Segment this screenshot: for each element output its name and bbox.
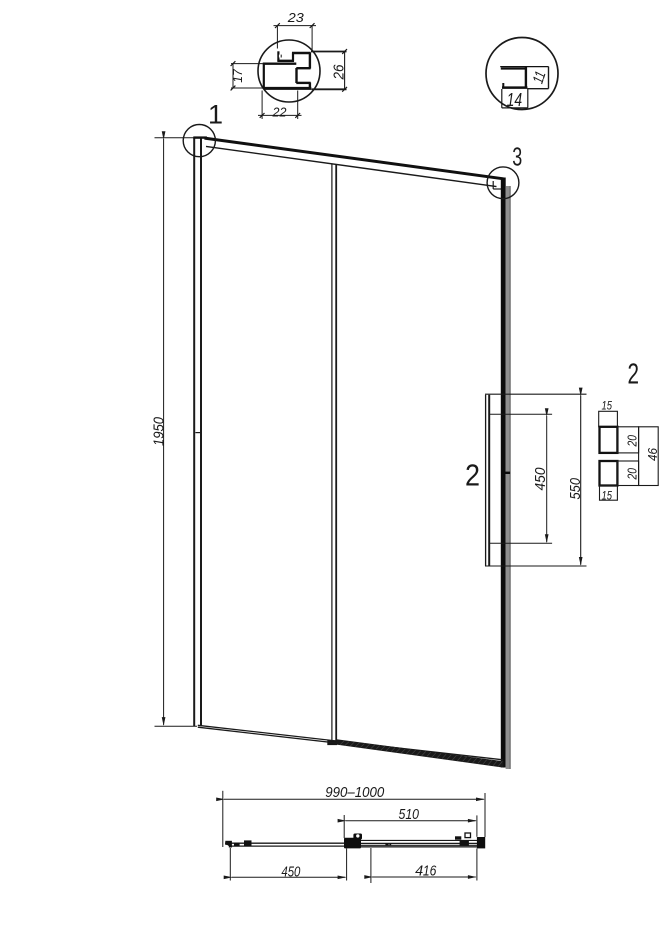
svg-text:510: 510 — [399, 807, 420, 823]
svg-text:990–1000: 990–1000 — [325, 784, 385, 801]
svg-text:550: 550 — [567, 477, 584, 499]
svg-text:450: 450 — [281, 865, 300, 881]
svg-text:15: 15 — [602, 489, 613, 503]
svg-text:1950: 1950 — [151, 416, 168, 446]
svg-text:15: 15 — [602, 399, 613, 413]
svg-text:450: 450 — [532, 467, 549, 491]
svg-text:20: 20 — [625, 434, 640, 447]
svg-text:16: 16 — [423, 864, 437, 880]
svg-text:23: 23 — [287, 10, 305, 25]
svg-text:20: 20 — [625, 467, 640, 480]
svg-text:22: 22 — [272, 105, 288, 120]
svg-text:3: 3 — [512, 141, 522, 171]
svg-text:17: 17 — [230, 69, 245, 83]
svg-text:2: 2 — [465, 458, 480, 493]
svg-text:14: 14 — [507, 90, 522, 110]
svg-text:1: 1 — [208, 100, 223, 130]
svg-text:2: 2 — [628, 359, 640, 391]
svg-text:46: 46 — [645, 447, 660, 461]
svg-text:26: 26 — [331, 64, 348, 80]
